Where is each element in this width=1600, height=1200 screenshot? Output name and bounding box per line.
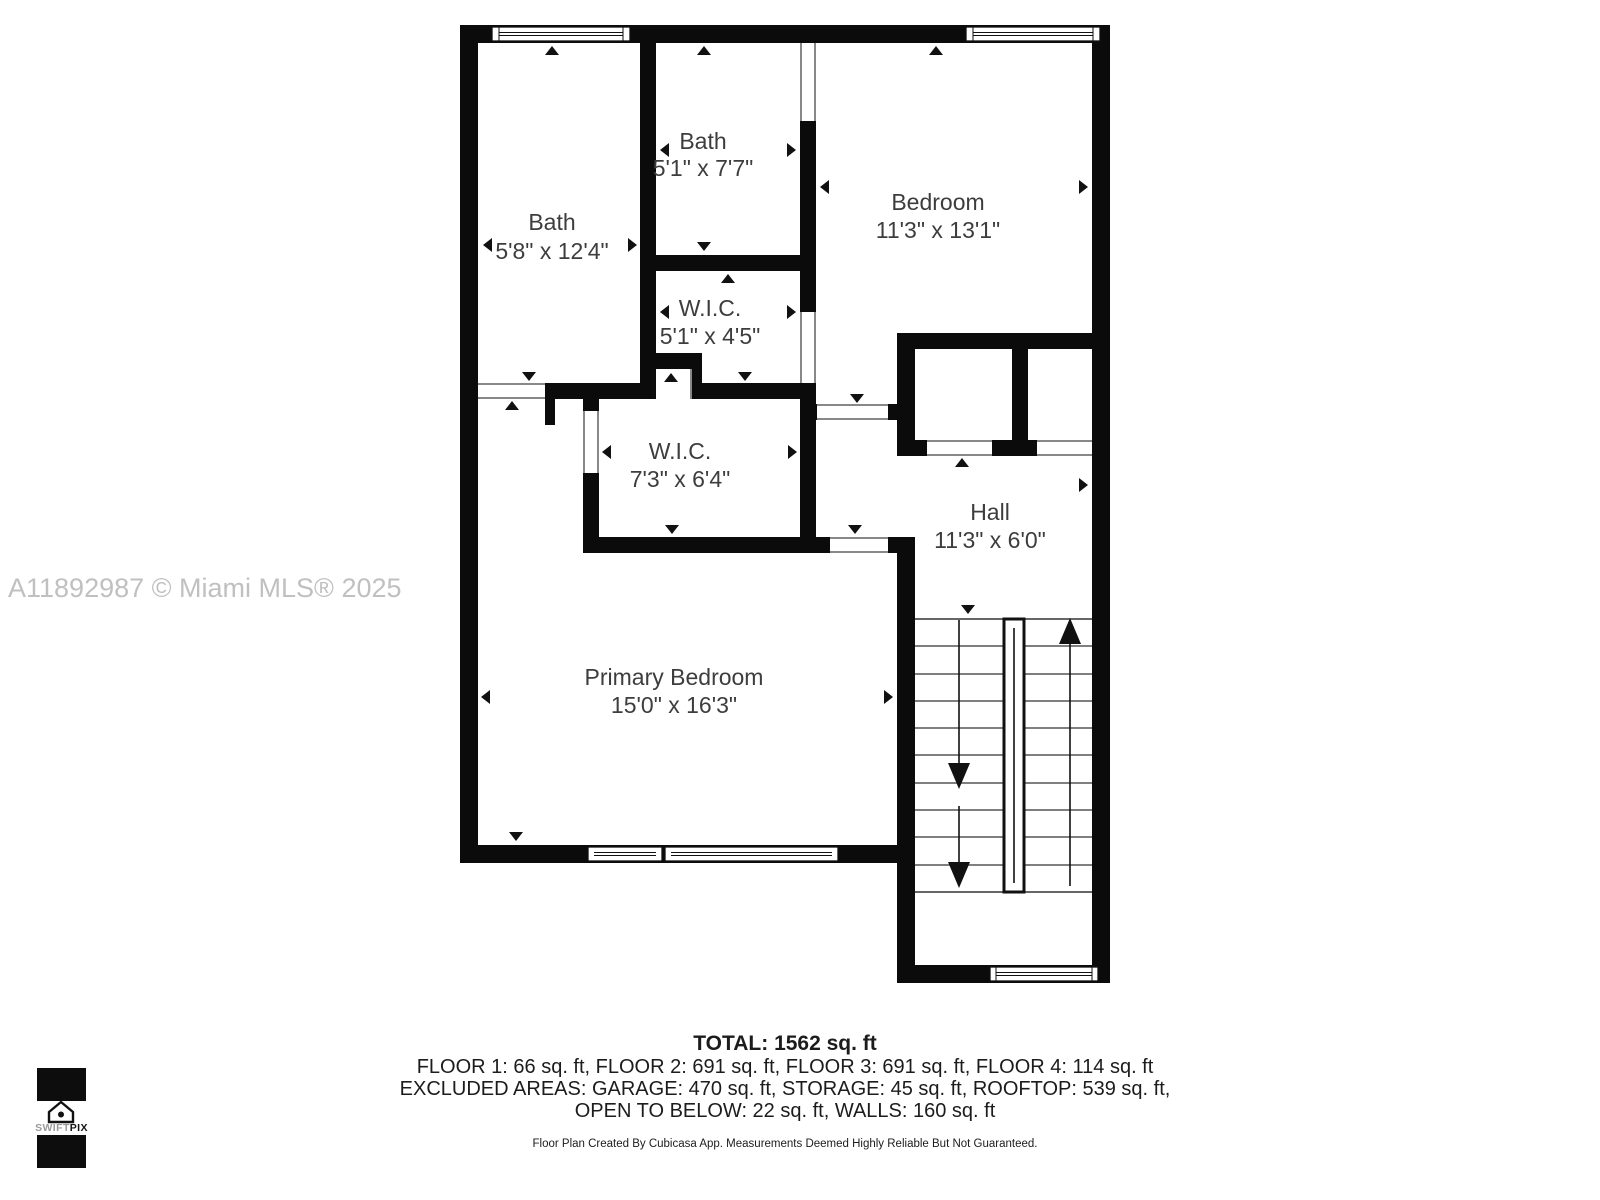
- wall-wic1-notch-top: [642, 353, 702, 369]
- room-label-bath1-name: Bath: [528, 209, 575, 235]
- room-label-hall-name: Hall: [970, 499, 1010, 525]
- marker-left: [660, 305, 669, 319]
- marker-right: [628, 238, 637, 252]
- wall-hall-primary-left: [816, 537, 830, 553]
- room-label-hall-dims: 11'3" x 6'0": [934, 527, 1046, 553]
- wall-wic2-top-right: [702, 383, 800, 399]
- marker-down: [665, 525, 679, 534]
- room-label-primary-name: Primary Bedroom: [585, 664, 764, 690]
- marker-right: [788, 445, 797, 459]
- room-label-bath2-name: Bath: [679, 128, 726, 154]
- marker-left: [602, 445, 611, 459]
- wall-closet-mid: [1012, 349, 1028, 456]
- marker-right: [1079, 180, 1088, 194]
- logo-text-swift: SWIFT: [35, 1122, 70, 1134]
- area-summary: TOTAL: 1562 sq. ft FLOOR 1: 66 sq. ft, F…: [400, 1032, 1171, 1150]
- disclaimer-text: Floor Plan Created By Cubicasa App. Meas…: [533, 1138, 1038, 1150]
- floor-areas-text: FLOOR 1: 66 sq. ft, FLOOR 2: 691 sq. ft,…: [417, 1056, 1154, 1078]
- marker-left: [483, 238, 492, 252]
- wall-bath1-door-stub: [545, 399, 555, 425]
- window-icon: [966, 27, 1100, 41]
- window-icon: [492, 27, 630, 41]
- wall-closet-top: [897, 333, 1110, 349]
- excluded-areas-text: EXCLUDED AREAS: GARAGE: 470 sq. ft, STOR…: [400, 1078, 1171, 1100]
- wall-right: [1092, 25, 1110, 983]
- marker-left: [481, 690, 490, 704]
- marker-up: [664, 373, 678, 382]
- marker-up: [955, 458, 969, 467]
- marker-right: [884, 690, 893, 704]
- room-labels: Bath 5'8" x 12'4" Bath 5'1" x 7'7" W.I.C…: [495, 128, 1046, 718]
- window-icon: [665, 847, 838, 861]
- marker-down: [961, 605, 975, 614]
- logo-block-top: [37, 1068, 86, 1101]
- room-label-bedroom-dims: 11'3" x 13'1": [876, 217, 1000, 243]
- house-camera-icon: [49, 1102, 73, 1122]
- marker-right: [787, 305, 796, 319]
- marker-down: [697, 242, 711, 251]
- stair-down-arrow: [948, 763, 970, 789]
- room-label-bath1-dims: 5'8" x 12'4": [495, 238, 608, 264]
- excluded-areas-text-2: OPEN TO BELOW: 22 sq. ft, WALLS: 160 sq.…: [575, 1100, 996, 1122]
- wall-wic1-notch-jamb-left: [642, 369, 652, 399]
- wall-bath-divider: [640, 43, 656, 399]
- room-label-wic2-dims: 7'3" x 6'4": [630, 466, 731, 492]
- wall-bath1-bottom-left: [545, 383, 642, 399]
- wall-closet-left: [897, 333, 915, 456]
- marker-up: [505, 401, 519, 410]
- room-label-primary-dims: 15'0" x 16'3": [611, 692, 737, 718]
- window-icon: [990, 967, 1098, 981]
- logo-block-bottom: [37, 1135, 86, 1168]
- swiftpix-logo: SWIFTPIX: [35, 1068, 88, 1168]
- marker-up: [697, 46, 711, 55]
- room-label-wic1-name: W.I.C.: [679, 295, 742, 321]
- wall-bath2-bottom: [656, 255, 800, 271]
- marker-up: [929, 46, 943, 55]
- logo-wordmark: SWIFTPIX: [35, 1122, 88, 1134]
- wall-wic2-left-stub: [583, 399, 599, 411]
- room-label-bedroom-name: Bedroom: [891, 189, 984, 215]
- room-label-wic1-dims: 5'1" x 4'5": [660, 323, 761, 349]
- marker-right: [787, 143, 796, 157]
- wall-wic2-bottom: [583, 537, 816, 553]
- room-label-bath2-dims: 5'1" x 7'7": [653, 155, 754, 181]
- marker-down: [850, 394, 864, 403]
- window-icon: [588, 847, 662, 861]
- marker-down: [848, 525, 862, 534]
- marker-left: [820, 180, 829, 194]
- wall-closet-bottom-mid: [992, 440, 1037, 456]
- logo-text-pix: PIX: [70, 1122, 88, 1134]
- room-label-wic2-name: W.I.C.: [649, 438, 712, 464]
- wall-left: [460, 25, 478, 863]
- wall-bath2-bedroom-upper: [800, 121, 816, 312]
- floor-plan-canvas: Bath 5'8" x 12'4" Bath 5'1" x 7'7" W.I.C…: [0, 0, 1600, 1200]
- wall-bedroom-hall-right: [888, 404, 915, 420]
- marker-up: [721, 274, 735, 283]
- stair-up-arrow: [1059, 618, 1081, 644]
- door-openings: [478, 43, 1092, 552]
- marker-right: [1079, 478, 1088, 492]
- stair-down-arrow: [948, 862, 970, 888]
- mls-watermark: A11892987 © Miami MLS® 2025: [8, 573, 402, 603]
- marker-down: [509, 832, 523, 841]
- wall-hall-primary-right: [888, 537, 915, 553]
- wall-wic1-notch-jamb-right: [692, 369, 702, 399]
- marker-up: [545, 46, 559, 55]
- wall-bedroom-hall-left: [803, 404, 817, 420]
- floor-plan-page: Bath 5'8" x 12'4" Bath 5'1" x 7'7" W.I.C…: [0, 0, 1600, 1200]
- wall-stair-left: [897, 538, 915, 983]
- stairs: [915, 619, 1092, 892]
- marker-down: [522, 372, 536, 381]
- wall-closet-bottom-left: [897, 440, 927, 456]
- marker-down: [738, 372, 752, 381]
- total-area-text: TOTAL: 1562 sq. ft: [693, 1032, 877, 1055]
